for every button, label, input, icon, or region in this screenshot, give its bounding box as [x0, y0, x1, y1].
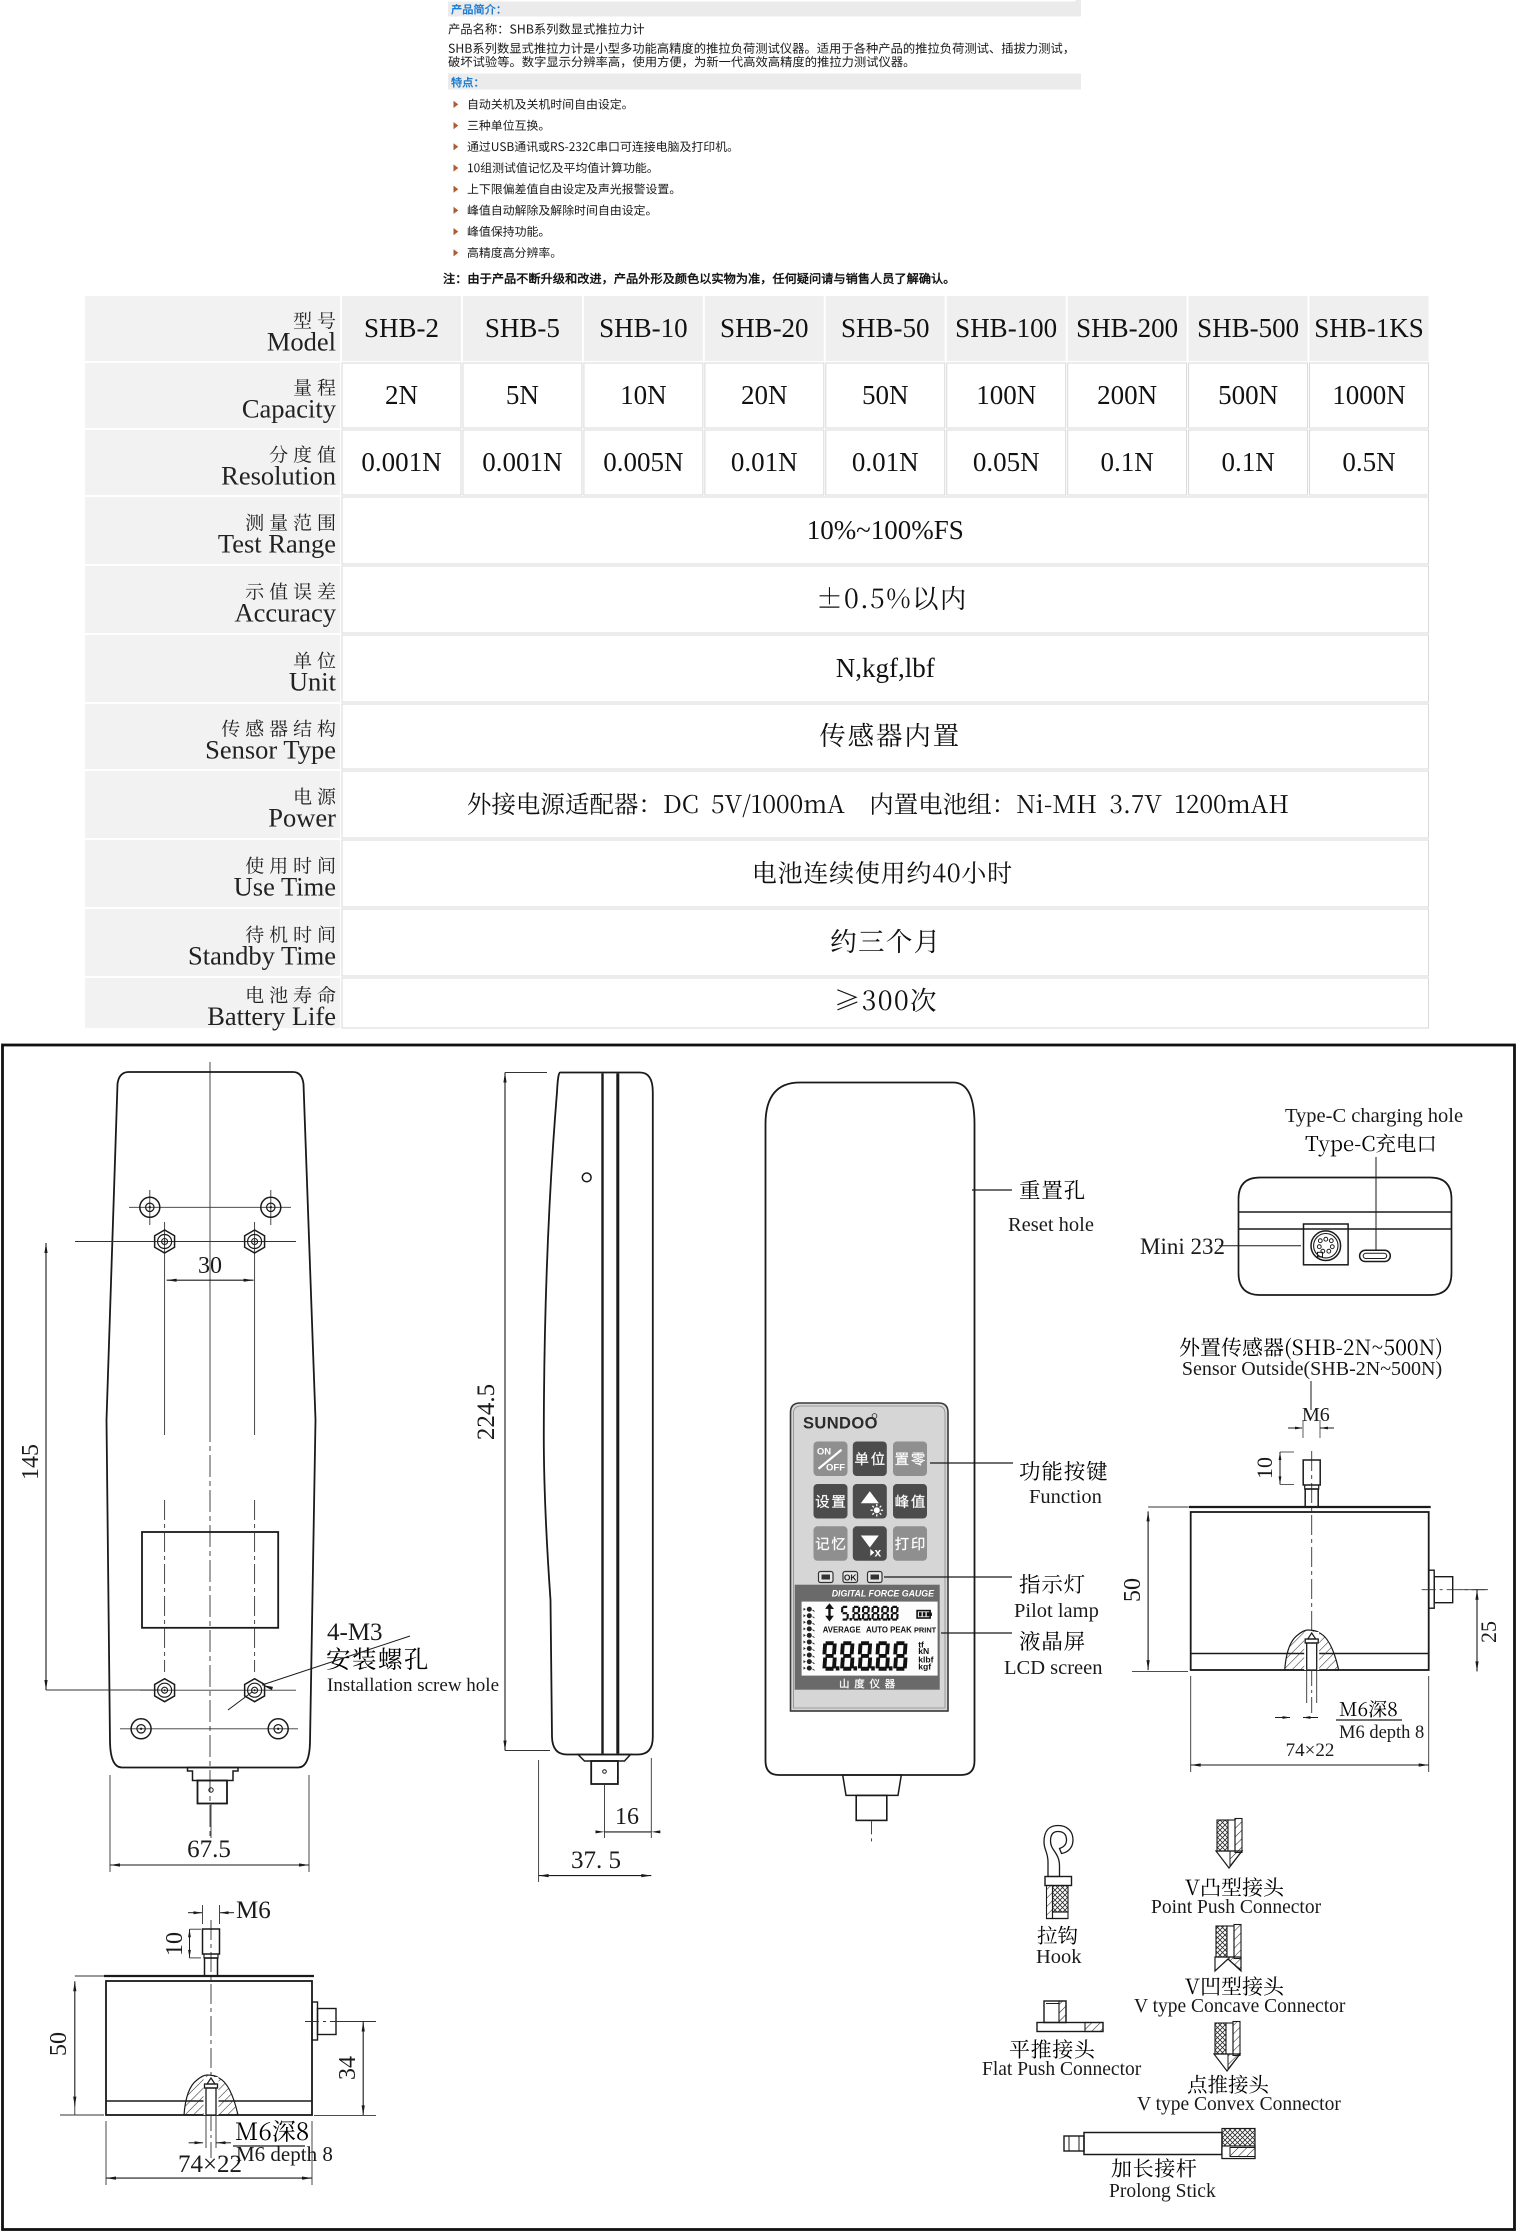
svg-text:V type Convex Connector: V type Convex Connector — [1137, 2094, 1341, 2115]
svg-text:0.5N: 0.5N — [1342, 447, 1395, 477]
svg-text:OFF: OFF — [826, 1462, 845, 1473]
svg-text:M6: M6 — [1302, 1404, 1330, 1426]
svg-text:50N: 50N — [862, 380, 909, 410]
svg-text:DIGITAL FORCE GAUGE: DIGITAL FORCE GAUGE — [832, 1588, 935, 1598]
svg-text:Model: Model — [267, 327, 336, 357]
svg-text:Test Range: Test Range — [218, 529, 336, 559]
svg-text:0.01N: 0.01N — [731, 447, 798, 477]
svg-text:0.001N: 0.001N — [482, 447, 562, 477]
svg-text:PRINT: PRINT — [914, 1625, 937, 1634]
svg-text:0.01N: 0.01N — [852, 447, 919, 477]
svg-text:Type-C charging hole: Type-C charging hole — [1285, 1105, 1463, 1127]
svg-text:SHB-100: SHB-100 — [955, 313, 1057, 343]
svg-text:500N: 500N — [1218, 380, 1278, 410]
svg-text:SHB-10: SHB-10 — [599, 313, 688, 343]
svg-text:67.5: 67.5 — [187, 1836, 231, 1863]
svg-text:Unit: Unit — [289, 667, 337, 697]
svg-text:Standby Time: Standby Time — [188, 941, 336, 971]
svg-text:Capacity: Capacity — [242, 394, 337, 424]
svg-text:OK: OK — [844, 1573, 858, 1583]
svg-text:Sensor Type: Sensor Type — [205, 735, 336, 765]
svg-text:SHB-2: SHB-2 — [364, 313, 439, 343]
svg-text:M6 depth 8: M6 depth 8 — [1339, 1723, 1424, 1743]
svg-text:100N: 100N — [976, 380, 1036, 410]
svg-text:kgf: kgf — [918, 1662, 931, 1672]
svg-text:Resolution: Resolution — [221, 461, 336, 491]
svg-text:1000N: 1000N — [1332, 380, 1406, 410]
svg-text:SUNDOO: SUNDOO — [803, 1415, 878, 1433]
svg-text:LCD screen: LCD screen — [1004, 1657, 1102, 1679]
svg-text:Pilot lamp: Pilot lamp — [1014, 1600, 1099, 1622]
svg-text:AVERAGE: AVERAGE — [823, 1625, 861, 1634]
svg-text:Power: Power — [268, 803, 336, 833]
svg-text:Battery Life: Battery Life — [207, 1001, 336, 1031]
svg-text:10: 10 — [162, 1932, 188, 1956]
svg-text:145: 145 — [18, 1444, 44, 1480]
svg-text:Function: Function — [1029, 1486, 1102, 1508]
svg-text:10%~100%FS: 10%~100%FS — [807, 515, 964, 545]
svg-text:74×22: 74×22 — [1286, 1740, 1335, 1761]
svg-text:30: 30 — [198, 1253, 222, 1279]
svg-text:M6 depth 8: M6 depth 8 — [236, 2142, 333, 2166]
svg-text:74×22: 74×22 — [178, 2151, 242, 2178]
svg-text:SHB-50: SHB-50 — [841, 313, 930, 343]
svg-text:0.001N: 0.001N — [361, 447, 441, 477]
svg-text:34: 34 — [335, 2056, 361, 2080]
svg-text:0.05N: 0.05N — [973, 447, 1040, 477]
svg-text:0.005N: 0.005N — [603, 447, 683, 477]
svg-text:AUTO PEAK: AUTO PEAK — [866, 1625, 912, 1634]
svg-text:Use Time: Use Time — [234, 872, 336, 902]
svg-text:50: 50 — [1120, 1578, 1146, 1602]
svg-text:10: 10 — [1252, 1457, 1277, 1479]
svg-text:ON: ON — [817, 1446, 831, 1457]
svg-text:Prolong Stick: Prolong Stick — [1109, 2181, 1216, 2202]
svg-text:5N: 5N — [506, 380, 539, 410]
svg-text:16: 16 — [615, 1804, 639, 1830]
svg-text:SHB-1KS: SHB-1KS — [1314, 313, 1424, 343]
svg-text:10N: 10N — [620, 380, 667, 410]
svg-text:SHB-20: SHB-20 — [720, 313, 809, 343]
svg-text:200N: 200N — [1097, 380, 1157, 410]
svg-text:V type Concave Connector: V type Concave Connector — [1134, 1996, 1346, 2017]
svg-text:2N: 2N — [385, 380, 418, 410]
svg-text:Flat Push Connector: Flat Push Connector — [982, 2059, 1142, 2080]
svg-text:25: 25 — [1476, 1621, 1501, 1643]
svg-text:N,kgf,lbf: N,kgf,lbf — [836, 653, 935, 683]
svg-text:Sensor Outside(SHB-2N~500N): Sensor Outside(SHB-2N~500N) — [1182, 1358, 1442, 1380]
svg-text:x: x — [874, 1546, 881, 1560]
svg-text:M6: M6 — [236, 1897, 271, 1924]
svg-text:SHB-200: SHB-200 — [1076, 313, 1178, 343]
svg-text:0.1N: 0.1N — [1101, 447, 1154, 477]
svg-text:Reset hole: Reset hole — [1008, 1214, 1094, 1236]
svg-text:37. 5: 37. 5 — [571, 1847, 621, 1874]
svg-text:20N: 20N — [741, 380, 788, 410]
svg-text:Hook: Hook — [1036, 1946, 1082, 1968]
svg-text:SHB-5: SHB-5 — [485, 313, 560, 343]
svg-text:Accuracy: Accuracy — [234, 598, 336, 628]
svg-text:Installation screw hole: Installation screw hole — [327, 1675, 499, 1696]
svg-text:0.1N: 0.1N — [1221, 447, 1274, 477]
svg-text:Mini 232: Mini 232 — [1140, 1234, 1225, 1259]
svg-text:Point Push Connector: Point Push Connector — [1151, 1897, 1322, 1918]
svg-text:4-M3: 4-M3 — [327, 1619, 383, 1646]
svg-text:50: 50 — [46, 2032, 72, 2056]
svg-text:224.5: 224.5 — [473, 1384, 500, 1440]
svg-text:SHB-500: SHB-500 — [1197, 313, 1299, 343]
